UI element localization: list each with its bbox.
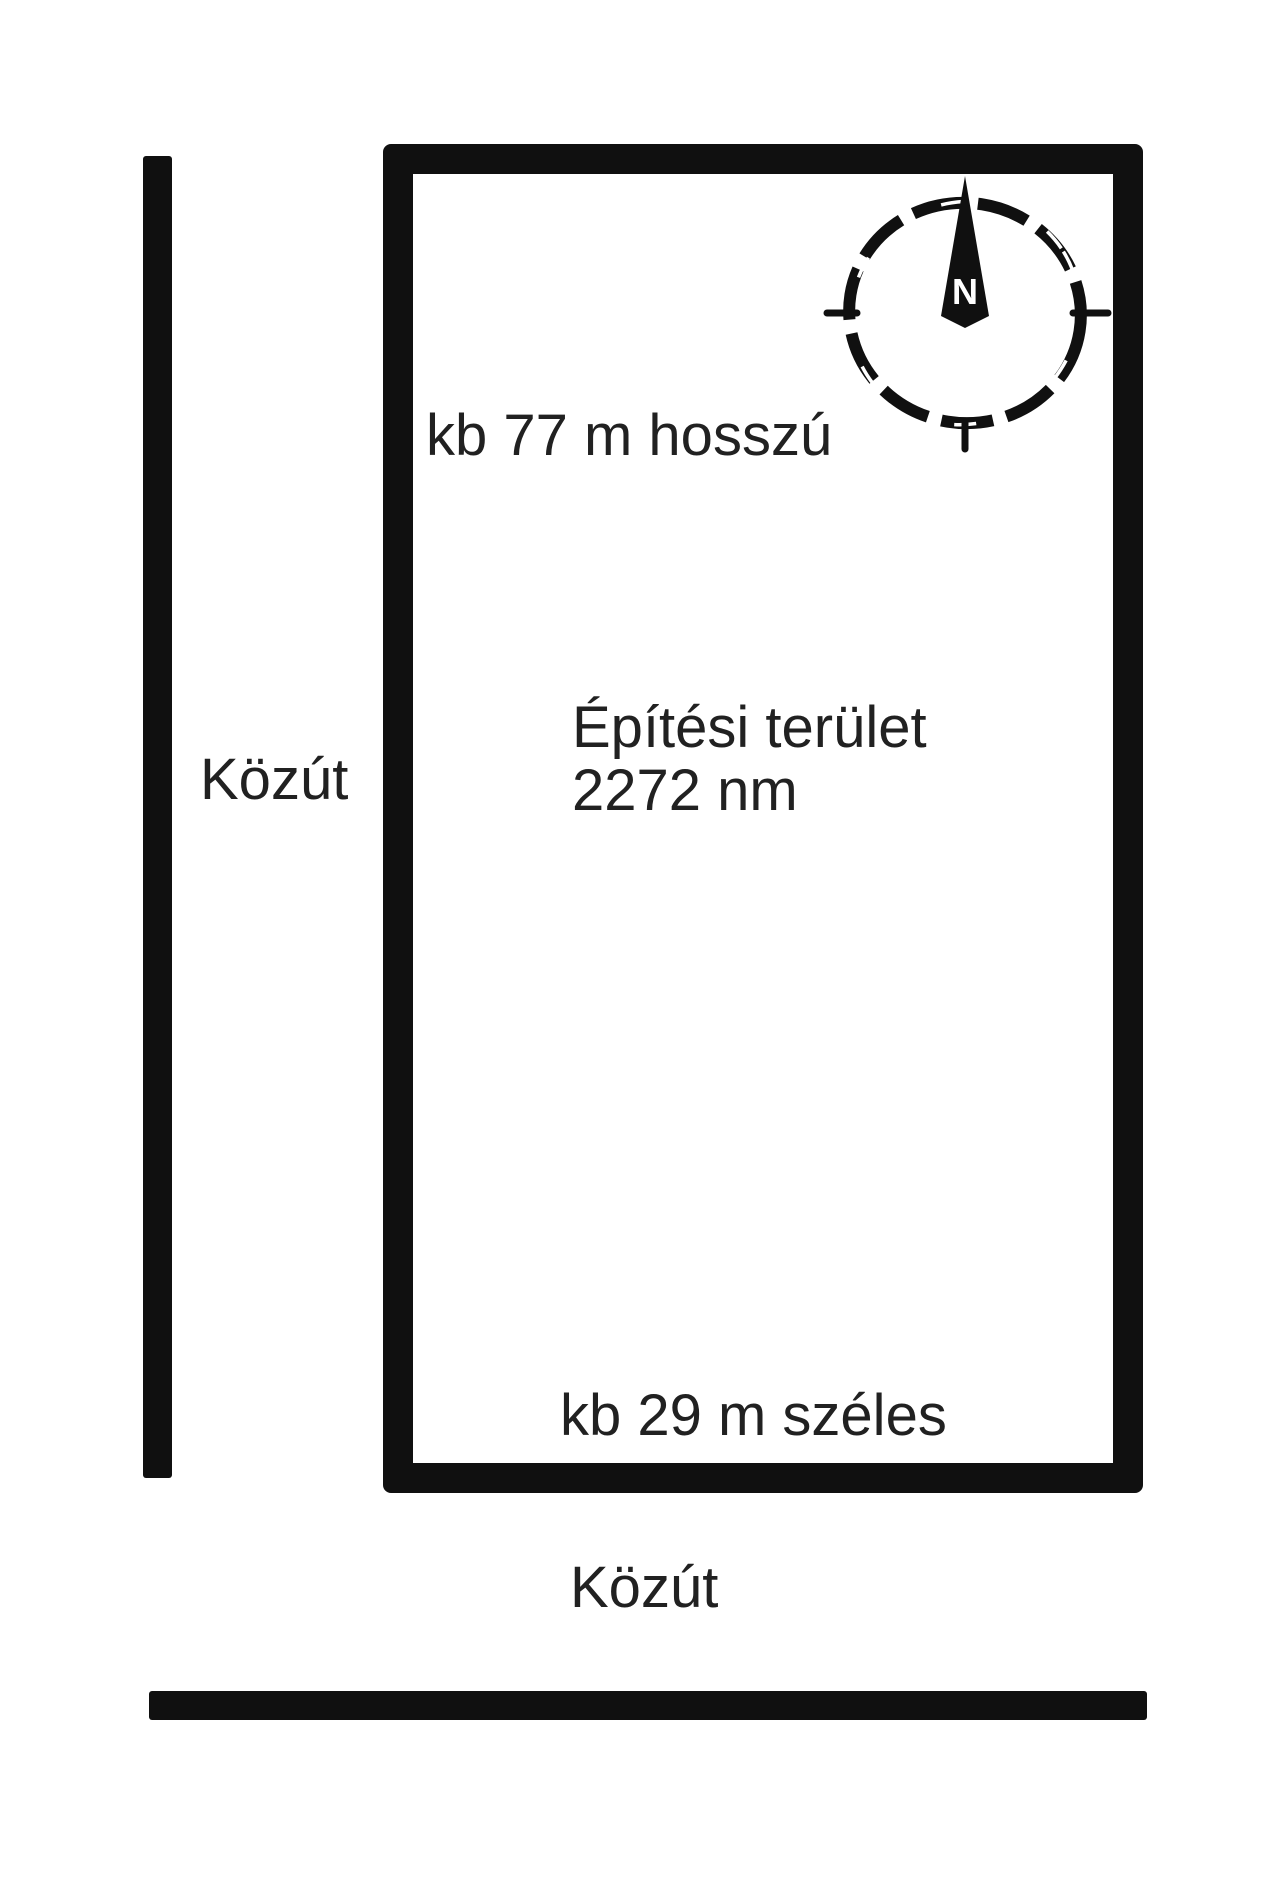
plot-area-label: Építési terület 2272 nm [572, 696, 927, 822]
plot-width-label: kb 29 m széles [560, 1384, 947, 1448]
compass-north-label: N [952, 271, 978, 312]
bottom-road-line [149, 1691, 1147, 1720]
left-road-label: Közút [200, 748, 348, 812]
plot-length-label: kb 77 m hosszú [426, 404, 832, 468]
left-road-line [143, 156, 172, 1478]
plot-area-title: Építési terület [572, 696, 927, 759]
compass-icon: N [820, 146, 1130, 476]
bottom-road-label: Közút [570, 1556, 718, 1620]
site-plan-diagram: kb 77 m hosszú N Építési terület 2272 nm… [0, 0, 1280, 1891]
plot-area-value: 2272 nm [572, 759, 927, 822]
